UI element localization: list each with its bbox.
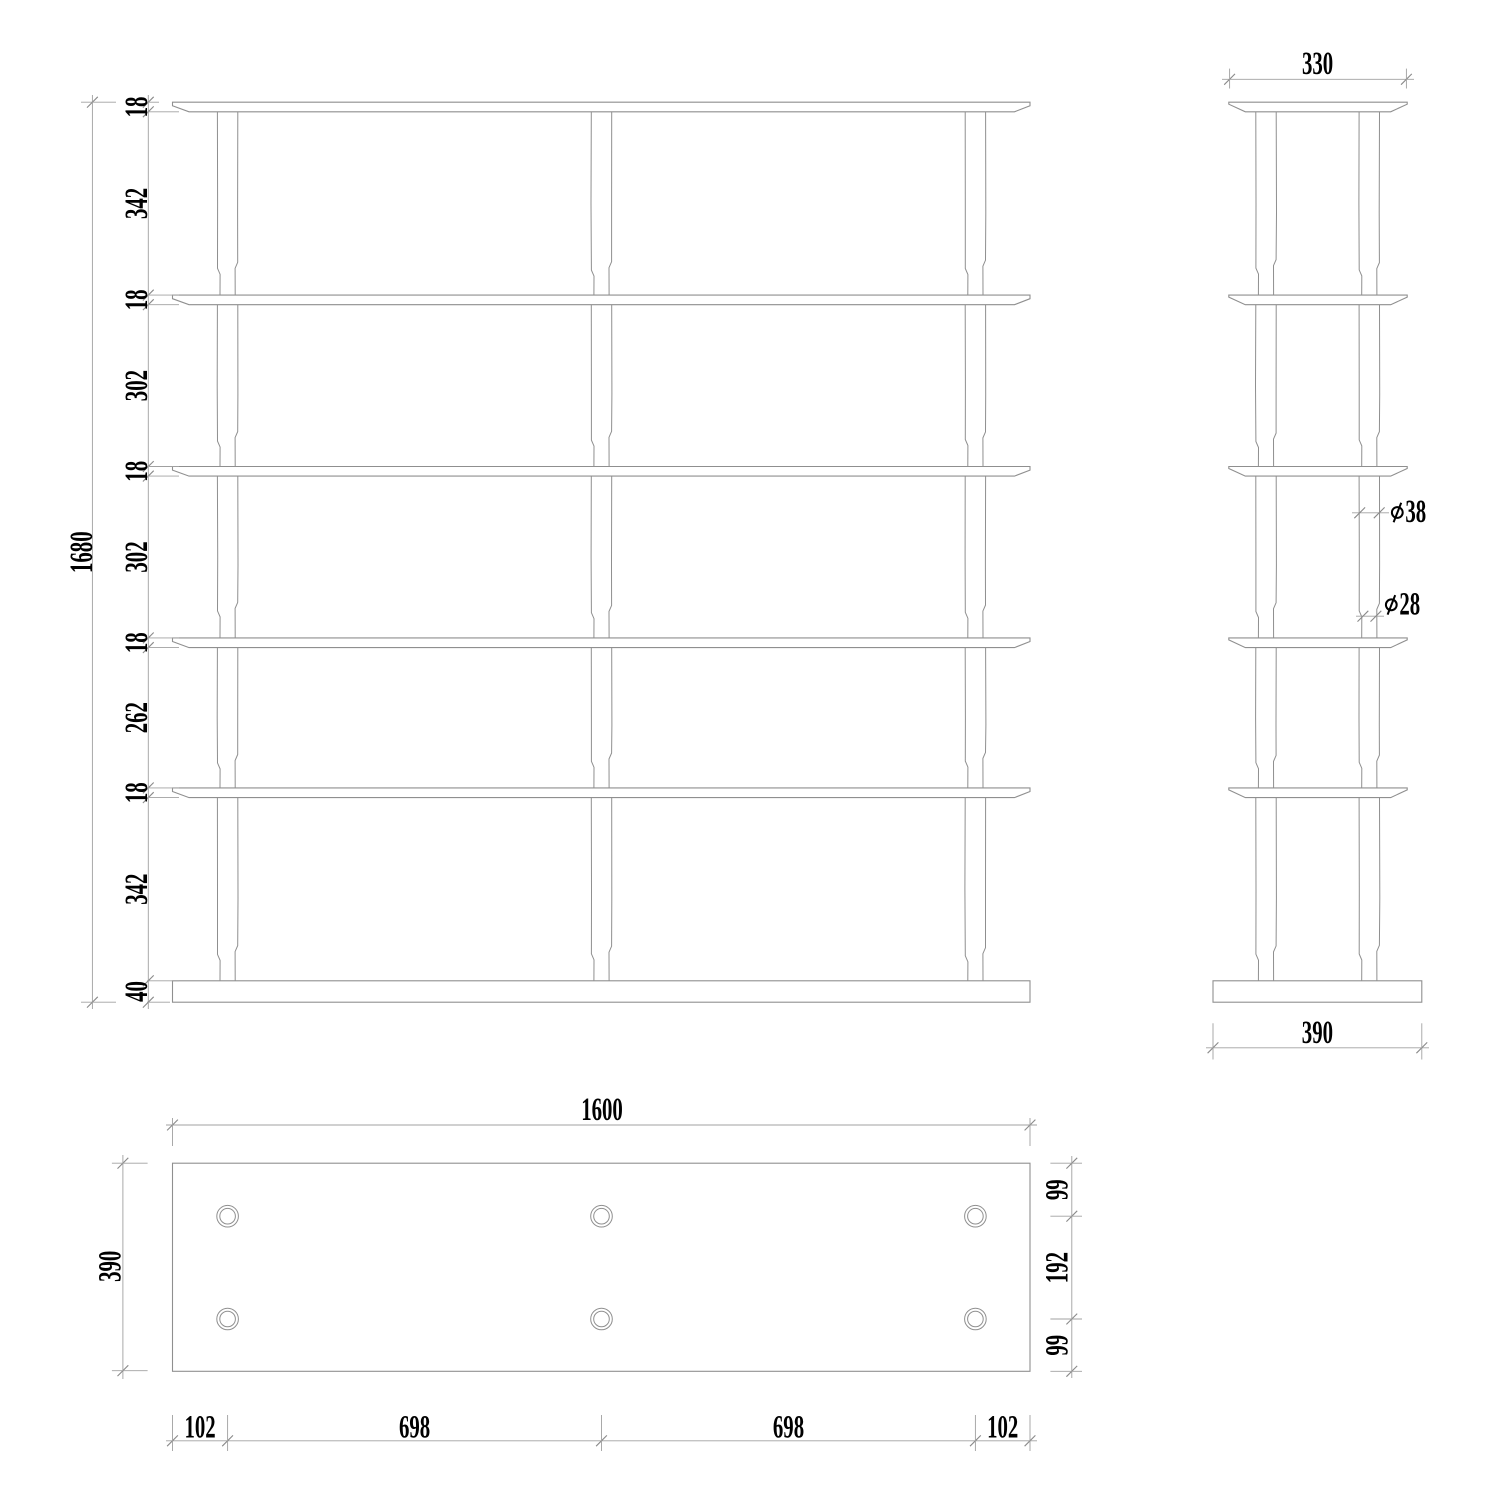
svg-text:262: 262 <box>119 702 155 733</box>
svg-text:18: 18 <box>119 97 155 118</box>
svg-text:99: 99 <box>1040 1179 1076 1200</box>
svg-text:698: 698 <box>399 1409 430 1445</box>
svg-text:40: 40 <box>119 981 155 1002</box>
svg-text:102: 102 <box>185 1409 216 1445</box>
svg-text:18: 18 <box>119 782 155 803</box>
svg-text:302: 302 <box>119 541 155 572</box>
svg-text:1680: 1680 <box>64 531 100 573</box>
svg-text:38: 38 <box>1405 494 1426 530</box>
svg-text:18: 18 <box>119 290 155 311</box>
svg-text:18: 18 <box>119 461 155 482</box>
svg-text:330: 330 <box>1302 46 1333 82</box>
svg-text:102: 102 <box>987 1409 1018 1445</box>
svg-text:99: 99 <box>1040 1335 1076 1356</box>
svg-text:1600: 1600 <box>581 1092 623 1128</box>
svg-text:390: 390 <box>1302 1015 1333 1051</box>
svg-text:302: 302 <box>119 370 155 401</box>
svg-text:390: 390 <box>92 1251 128 1282</box>
svg-text:698: 698 <box>773 1409 804 1445</box>
svg-text:342: 342 <box>119 874 155 905</box>
svg-text:192: 192 <box>1040 1252 1076 1283</box>
svg-text:342: 342 <box>119 188 155 219</box>
svg-text:28: 28 <box>1399 586 1420 622</box>
svg-text:18: 18 <box>119 632 155 653</box>
